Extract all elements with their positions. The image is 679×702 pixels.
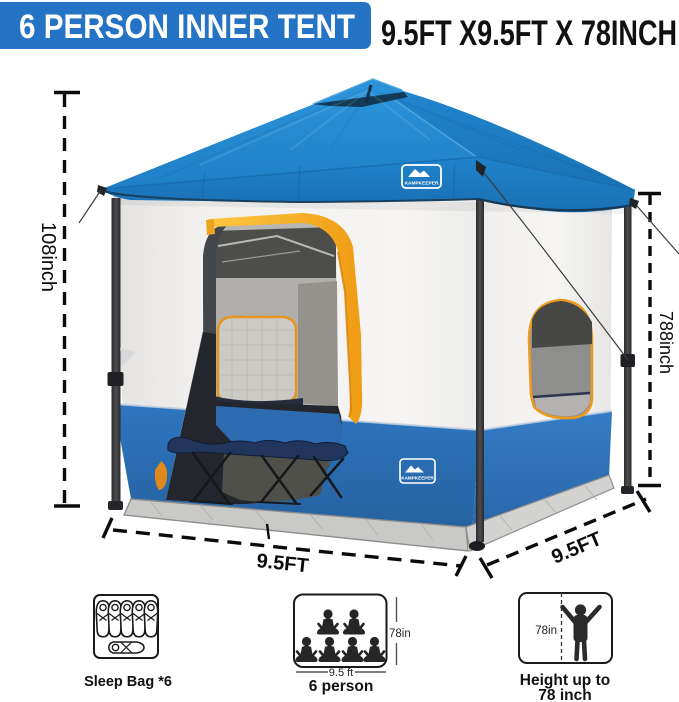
svg-text:9.5FT X9.5FT X 78INCH: 9.5FT X9.5FT X 78INCH xyxy=(381,14,677,53)
svg-text:6 PERSON INNER TENT: 6 PERSON INNER TENT xyxy=(19,8,355,46)
svg-text:Sleep Bag *6: Sleep Bag *6 xyxy=(84,674,172,690)
svg-text:78in: 78in xyxy=(535,625,557,637)
svg-text:788inch: 788inch xyxy=(656,311,676,374)
svg-text:78in: 78in xyxy=(389,628,411,640)
svg-text:108inch: 108inch xyxy=(37,222,59,292)
svg-text:78 inch: 78 inch xyxy=(538,687,591,702)
svg-text:KAMPKEEPER: KAMPKEEPER xyxy=(401,476,434,481)
svg-text:6 person: 6 person xyxy=(309,678,374,695)
svg-text:KAMPKEEPER: KAMPKEEPER xyxy=(405,181,439,187)
